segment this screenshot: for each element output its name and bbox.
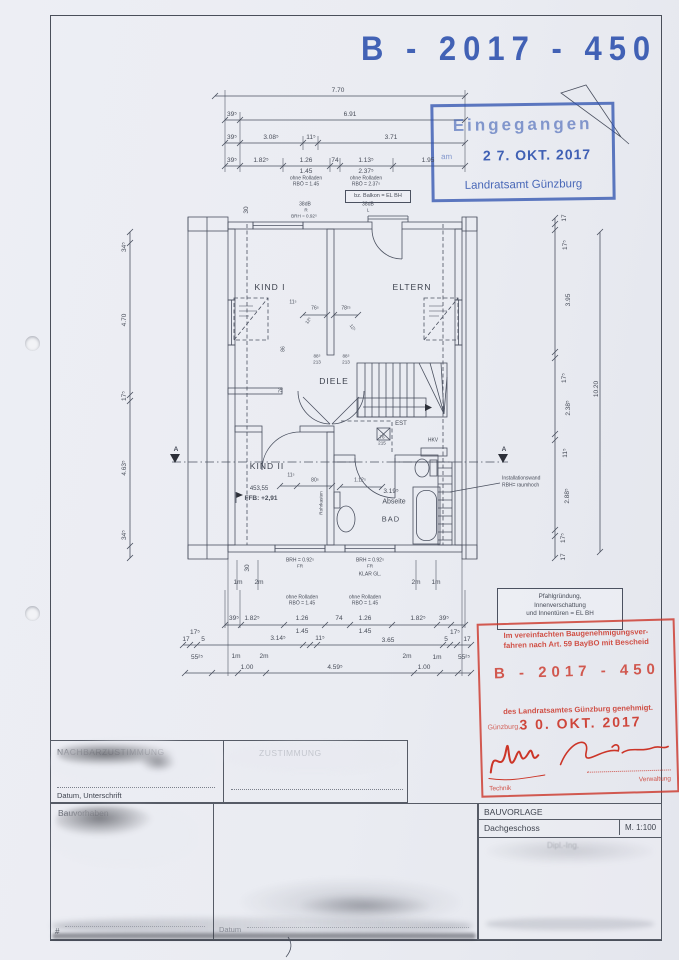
whiteout-mark xyxy=(226,742,396,772)
dim-label: 74 xyxy=(335,616,342,623)
approval-number: B - 2017 - 450 xyxy=(480,660,674,682)
note-line: Pfahlgründung, xyxy=(498,593,622,602)
door-size-label: 213 xyxy=(342,361,350,366)
dim-label: 4.70 xyxy=(122,314,129,327)
room-label-eltern: ELTERN xyxy=(393,283,432,292)
dim-label: 1.00 xyxy=(418,665,431,672)
dim-label: 34⁵ xyxy=(122,242,129,252)
dim-label: 4.63⁵ xyxy=(122,460,129,475)
dim-label: 1.12⁵ xyxy=(354,479,366,484)
dim-label: 5 xyxy=(444,637,448,644)
scan-streak xyxy=(52,918,472,934)
dim-label: 17 xyxy=(182,637,189,644)
level-label: 453,55 xyxy=(250,486,268,492)
ink-smudge xyxy=(140,752,176,772)
dim-label: 3.08⁵ xyxy=(263,135,278,142)
file-number-handstamp: B - 2017 - 450 xyxy=(361,29,657,69)
dim-label: 34⁵ xyxy=(122,530,129,540)
dim-label: 5 xyxy=(201,637,205,644)
received-stamp-am: am xyxy=(441,152,452,161)
room-label-est: EST xyxy=(395,421,407,427)
dim-label: 2m xyxy=(402,654,411,661)
approval-label-technik: Technik xyxy=(489,785,511,793)
door-size-label: 215 xyxy=(378,442,386,447)
dim-label: 10.20 xyxy=(594,381,601,397)
room-label-hkv: HKV xyxy=(428,439,438,444)
bauvorlage-header: BAUVORLAGE xyxy=(484,808,543,817)
dim-label: 76⁵ xyxy=(311,307,319,312)
brh-label-sub: FR xyxy=(297,565,303,570)
rolladen-note: RBÖ = 1.45 xyxy=(352,602,378,607)
pencil-smudge xyxy=(486,838,654,864)
glazing-label: KLAR GL. xyxy=(359,573,382,578)
dim-label: 55²⁵ xyxy=(458,655,470,662)
dim-label: 3.95 xyxy=(566,294,573,307)
install-wall-note: Installationswand xyxy=(502,477,540,482)
dim-label: 17⁵ xyxy=(450,630,460,637)
dim-label: 17⁵ xyxy=(190,630,200,637)
dim-label: 4.59⁵ xyxy=(327,665,342,672)
dim-label: 3.19⁵ xyxy=(383,489,398,496)
door-size-label: 213 xyxy=(313,361,321,366)
room-label-kind1: KIND I xyxy=(254,283,285,292)
balkon-note-box: bz. Balkon = EL BH xyxy=(345,190,411,203)
dim-label: 3.14⁵ xyxy=(270,636,285,643)
rolladen-note: RBÖ = 1.45 xyxy=(293,183,319,188)
note-line: Innenverschattung xyxy=(498,602,622,611)
dim-label: 1.13⁵ xyxy=(358,158,373,165)
dim-label: 11⁵ xyxy=(289,301,296,306)
approval-label-verwaltung: Verwaltung xyxy=(639,775,671,783)
dim-label: 17 xyxy=(562,214,569,221)
dim-label: 17 xyxy=(463,637,470,644)
dim-label: 3.71 xyxy=(385,135,398,142)
dim-label: 1.82⁵ xyxy=(253,158,268,165)
dim-label: 1m xyxy=(432,655,441,662)
sheet-name: Dachgeschoss xyxy=(484,824,540,833)
dim-label: 1.45 xyxy=(359,629,372,636)
signatures xyxy=(484,723,675,783)
meter-mark: 1m xyxy=(431,580,440,587)
rolladen-note: RBÖ = 1.45 xyxy=(289,602,315,607)
sound-label-sub: L xyxy=(367,209,370,214)
received-stamp: Eingegangen am 2 7. OKT. 2017 Landratsam… xyxy=(430,102,615,203)
dim-label: 2.38⁵ xyxy=(566,400,573,415)
scan-streak xyxy=(486,918,654,930)
dim-label: 55²⁵ xyxy=(191,655,203,662)
section-marker-a-right: A xyxy=(502,447,507,454)
ffb-label: FFB: +2,91 xyxy=(244,496,277,503)
rohrkasten-label: Rohrkasten xyxy=(320,491,325,515)
meter-mark: 2m xyxy=(254,580,263,587)
dim-label: 2m xyxy=(259,654,268,661)
meter-mark: 2m xyxy=(411,580,420,587)
dim-label: 11⁵ xyxy=(563,448,570,457)
scan-streak xyxy=(52,933,476,939)
form-divider xyxy=(223,741,224,802)
dim-label: 17⁵ xyxy=(563,240,570,250)
dim-label: 17⁵ xyxy=(562,373,569,383)
approval-stamp: Im vereinfachten Baugenehmigungsver- fah… xyxy=(477,618,679,797)
dim-label: 11⁵ xyxy=(306,135,315,142)
dim-label: 39⁵ xyxy=(227,112,237,119)
dim-label: 1.45 xyxy=(300,169,313,176)
ink-smudge xyxy=(56,806,152,836)
dim-label: 1m xyxy=(231,654,240,661)
dim-label: 17⁵ xyxy=(122,391,129,401)
signature-line xyxy=(231,789,403,790)
rolladen-note: RBÖ = 2.37⁵ xyxy=(352,183,380,188)
dim-label: 30 xyxy=(245,564,252,571)
brh-label: BRH = 0.92⁵ xyxy=(291,215,317,220)
dim-label: 78²⁵ xyxy=(341,307,350,312)
dim-label: 86 xyxy=(282,346,287,352)
dim-label: 1.95 xyxy=(422,158,435,165)
titleblock-line xyxy=(479,819,661,820)
received-stamp-title: Eingegangen xyxy=(433,114,611,136)
dim-label: 1.00 xyxy=(241,665,254,672)
dim-label: 2.88⁵ xyxy=(565,488,572,503)
section-marker-a-left: A xyxy=(174,447,179,454)
dim-label: 39⁵ xyxy=(227,158,237,165)
datum-unterschrift-label: Datum, Unterschrift xyxy=(57,792,122,800)
meter-mark: 1m xyxy=(233,580,242,587)
dim-label: 1.26 xyxy=(359,616,372,623)
dim-label: 39⁵ xyxy=(227,135,237,142)
dim-label: 39⁵ xyxy=(439,616,449,623)
dim-label: 17⁵ xyxy=(561,533,568,543)
dim-label: 74 xyxy=(331,158,338,165)
install-wall-note: RBH= raumhoch xyxy=(502,484,539,489)
dim-label: 17 xyxy=(561,553,568,560)
pencil-smudge xyxy=(300,895,430,917)
dim-label: 11⁵ xyxy=(315,636,324,643)
brh-label-sub: FR xyxy=(367,565,373,570)
door-size-label: 76 xyxy=(379,436,384,441)
dim-label: 1.82⁵ xyxy=(410,616,425,623)
dim-label: 6.91 xyxy=(344,112,357,119)
sound-label-sub: R xyxy=(304,209,307,214)
room-label-abseite: Abseite xyxy=(382,499,405,506)
dim-label: 80⁵ xyxy=(311,479,319,484)
dim-label: 39⁵ xyxy=(229,616,239,623)
room-label-bad: BAD xyxy=(382,515,400,523)
dim-label: 1.82⁵ xyxy=(244,616,259,623)
received-stamp-office: Landratsamt Günzburg xyxy=(434,178,612,192)
dim-label: 76 xyxy=(280,387,285,393)
dim-label: 7.70 xyxy=(332,88,345,95)
titleblock-divider xyxy=(619,819,620,835)
dim-label: 1.26 xyxy=(300,158,313,165)
door-size-label: 88⁵ xyxy=(342,355,349,360)
dim-label: 1.45 xyxy=(296,629,309,636)
scanned-document-page: B - 2017 - 450 Eingegangen am 2 7. OKT. … xyxy=(0,0,679,960)
room-label-kind2: KIND II xyxy=(250,462,284,471)
dim-label: 30 xyxy=(244,206,251,213)
signature-line xyxy=(57,787,215,788)
room-label-diele: DIELE xyxy=(319,377,349,386)
dim-label: 3.65 xyxy=(382,638,395,645)
dim-label: 11⁵ xyxy=(287,474,294,479)
scale-value: M. 1:100 xyxy=(625,824,656,832)
dim-label: 1.26 xyxy=(296,616,309,623)
note-line: und Innentüren = EL BH xyxy=(498,610,622,619)
door-size-label: 88⁵ xyxy=(313,355,320,360)
received-stamp-date: 2 7. OKT. 2017 xyxy=(462,146,612,164)
dim-label: 2.37⁵ xyxy=(358,169,373,176)
